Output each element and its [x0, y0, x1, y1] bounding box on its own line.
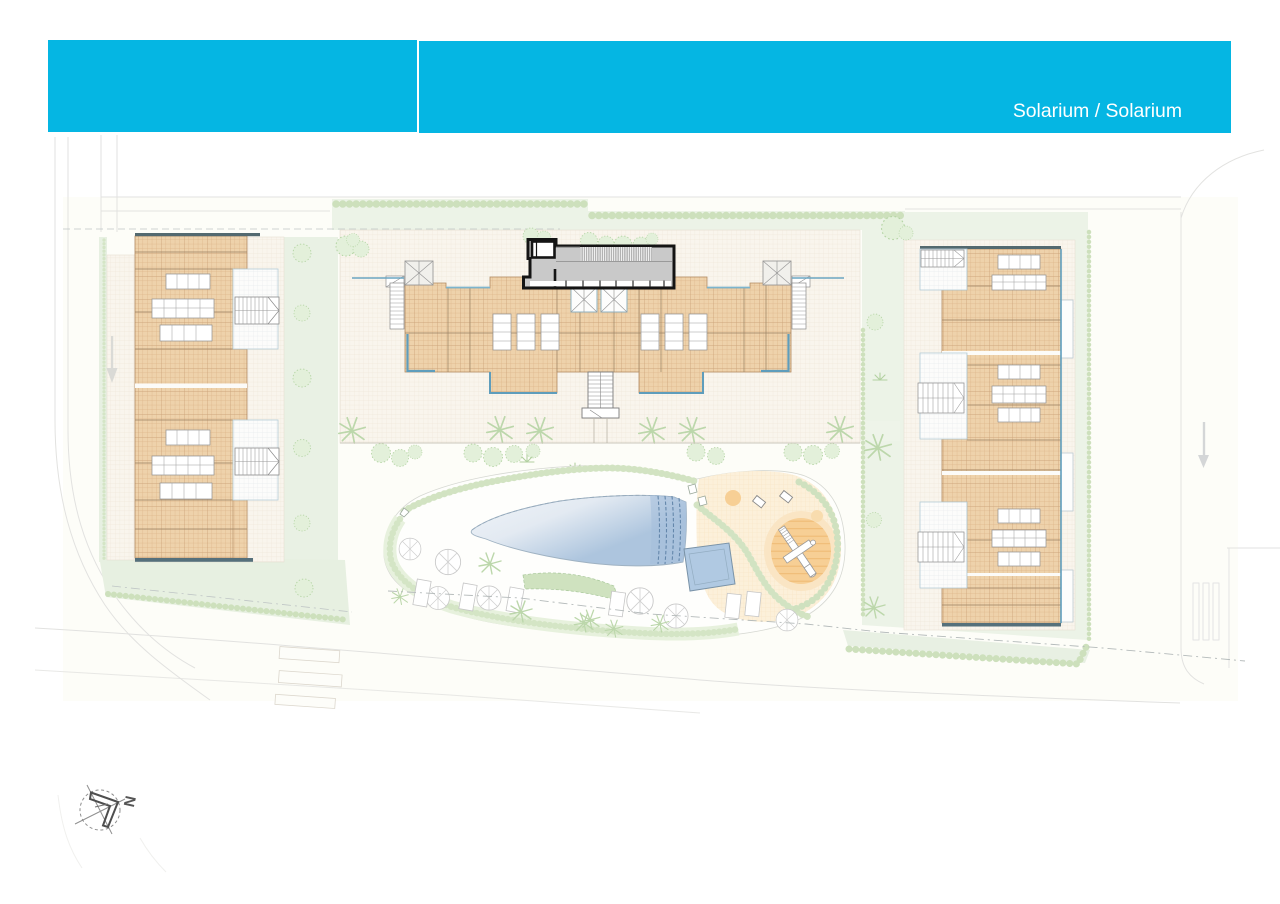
- svg-text:Solarium / Solarium: Solarium / Solarium: [1013, 100, 1182, 122]
